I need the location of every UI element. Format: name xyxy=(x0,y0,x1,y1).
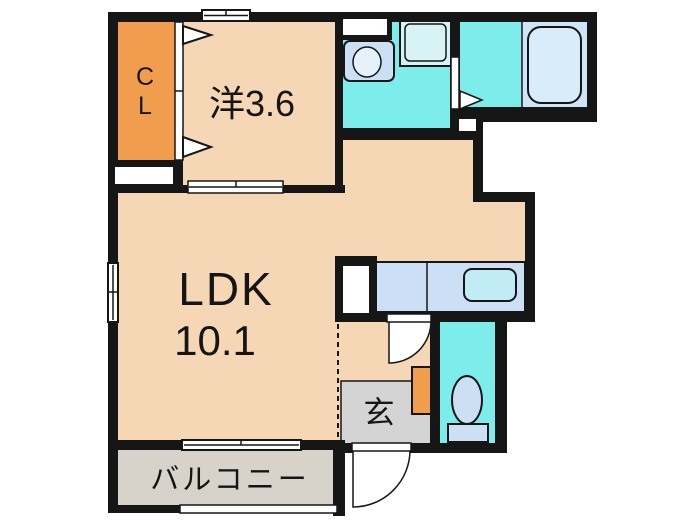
wall-toilet-east xyxy=(495,312,507,453)
ldk-label: LDK xyxy=(178,262,273,316)
bathtub xyxy=(528,27,581,103)
ldk-area-label: 10.1 xyxy=(174,317,256,365)
niche-pier xyxy=(343,266,369,313)
entry-door-swing xyxy=(353,450,410,507)
shoe-cabinet xyxy=(412,367,433,414)
window-top xyxy=(202,10,250,21)
western-room-label: 洋3.6 xyxy=(209,75,295,127)
niche-washroom xyxy=(343,19,387,35)
washing-machine-pan xyxy=(400,19,451,66)
genkan-label: 玄 xyxy=(364,388,395,433)
window-left xyxy=(108,263,118,322)
hall-door-panel xyxy=(387,314,431,322)
toilet-bowl xyxy=(452,376,482,424)
wall-east xyxy=(525,192,535,322)
wall-balcony-bottom xyxy=(108,505,182,513)
entry-door-panel xyxy=(352,443,411,451)
bathroom-door-panel xyxy=(451,57,459,109)
window-balcony xyxy=(182,440,301,450)
kitchen-sink xyxy=(464,269,516,301)
washbasin-bowl xyxy=(353,47,381,77)
wall-step-vertical xyxy=(473,122,483,202)
wall-toilet-west xyxy=(430,314,440,443)
closet-label: CL xyxy=(134,63,156,121)
floor-plan: CL 洋3.6 LDK 10.1 玄 バルコニー xyxy=(0,0,700,525)
niche-below-closet xyxy=(115,167,173,184)
sliding-door-western-ldk xyxy=(188,181,283,193)
notch-exterior xyxy=(459,119,476,131)
balcony-railing xyxy=(180,505,337,513)
balcony-label: バルコニー xyxy=(150,456,309,498)
wall-bathroom-east xyxy=(587,12,597,122)
floor-plan-drawing xyxy=(0,0,700,525)
toilet-tank xyxy=(448,424,488,442)
wall-genkan-south-right xyxy=(410,443,507,453)
